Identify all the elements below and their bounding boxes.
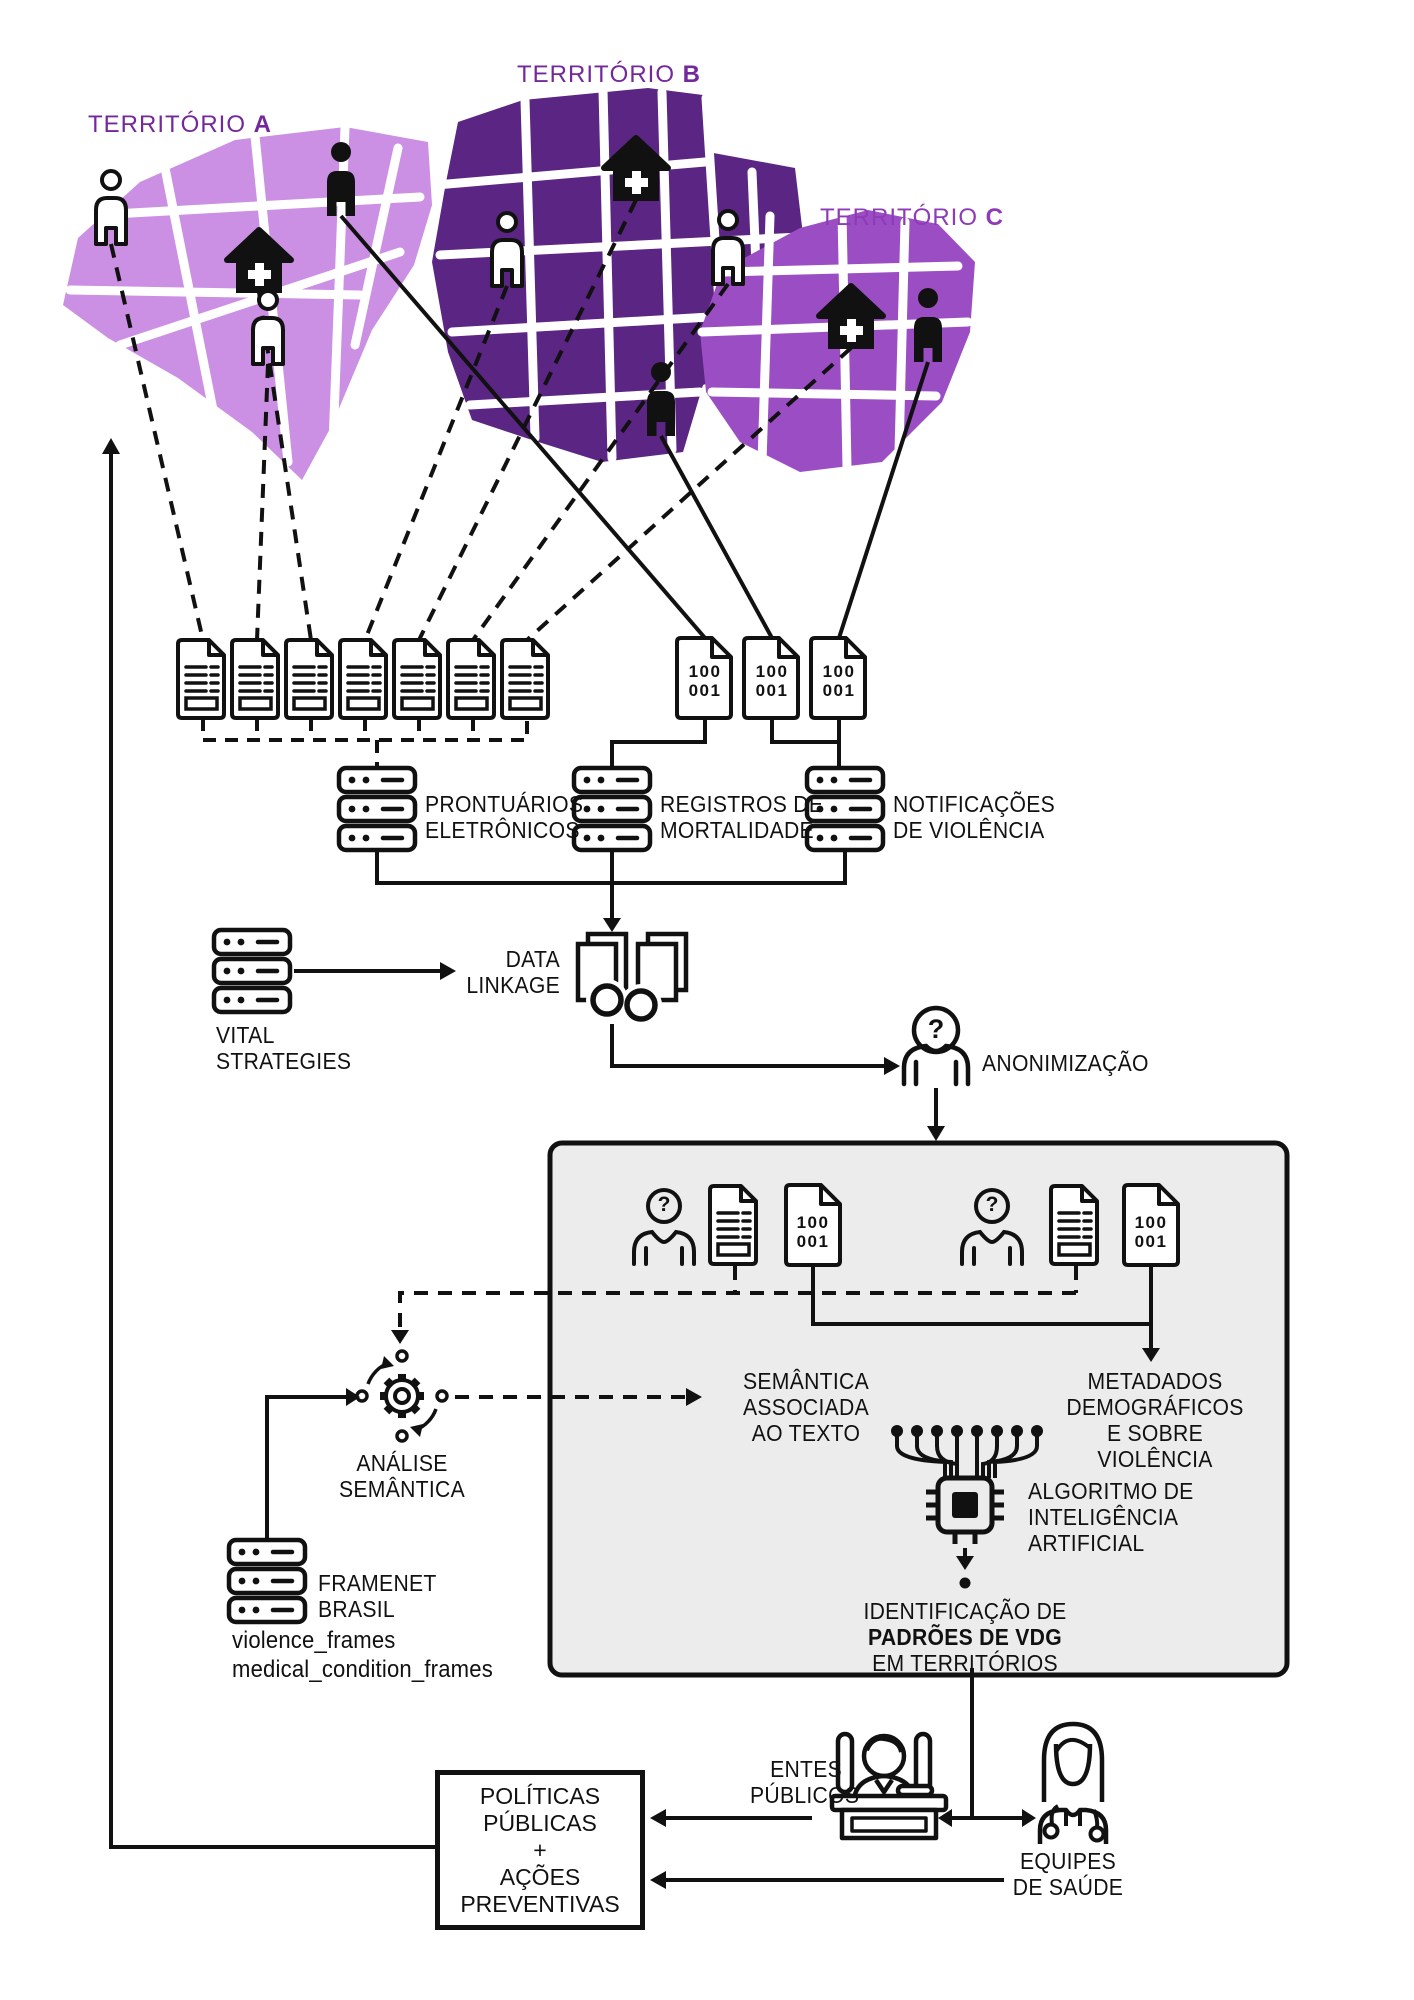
territory-letter: A <box>254 111 272 138</box>
question-mark-glyph: ? <box>972 1193 1012 1217</box>
territory-a-label: TERRITÓRIO A <box>88 112 272 138</box>
equipes-saude-label: EQUIPES DE SAÚDE <box>1013 1848 1123 1900</box>
linkage-to-anonymization-connector <box>612 1024 884 1066</box>
framenet-database-icon <box>229 1540 305 1622</box>
binary-digits: 100 001 <box>734 662 810 700</box>
semantic-analysis-gear-icon <box>357 1351 447 1441</box>
prontuarios-database-icon <box>339 768 415 850</box>
binary-digits: 100 001 <box>1113 1213 1189 1251</box>
territory-letter: B <box>683 61 701 88</box>
territory-label-text: TERRITÓRIO <box>88 111 246 138</box>
metadados-label: METADADOS DEMOGRÁFICOS E SOBRE VIOLÊNCIA <box>1054 1368 1256 1472</box>
politicas-publicas-box: POLÍTICAS PÚBLICAS + AÇÕES PREVENTIVAS <box>435 1770 645 1930</box>
territory-label-text: TERRITÓRIO <box>820 204 978 231</box>
infographic-canvas: TERRITÓRIO A TERRITÓRIO B TERRITÓRIO C 1… <box>0 0 1414 2000</box>
arrowhead-down <box>391 1330 409 1344</box>
text-document-icons <box>178 640 548 718</box>
identificacao-line2-bold: PADRÕES DE VDG <box>868 1624 1062 1650</box>
arrowhead-right <box>884 1057 900 1075</box>
binary-digits: 100 001 <box>775 1213 851 1251</box>
data-linkage-icon <box>578 934 686 1026</box>
databases-to-linkage-bus <box>377 852 845 920</box>
output-dot <box>960 1578 971 1589</box>
semantica-texto-label: SEMÂNTICA ASSOCIADA AO TEXTO <box>723 1368 889 1446</box>
framenet-label: FRAMENET BRASIL <box>318 1570 437 1622</box>
vital-strategies-label: VITAL STRATEGIES <box>216 1022 351 1074</box>
identificacao-line3: EM TERRITÓRIOS <box>872 1650 1058 1676</box>
territory-b-label: TERRITÓRIO B <box>517 62 701 88</box>
identificacao-line1: IDENTIFICAÇÃO DE <box>863 1598 1066 1624</box>
anonimizacao-label: ANONIMIZAÇÃO <box>982 1050 1149 1076</box>
territory-label-text: TERRITÓRIO <box>517 61 675 88</box>
health-team-doctor-icon <box>1040 1724 1106 1844</box>
question-mark-glyph: ? <box>644 1193 684 1217</box>
arrowhead-down <box>603 918 621 932</box>
identificacao-label: IDENTIFICAÇÃO DEPADRÕES DE VDGEM TERRITÓ… <box>855 1598 1076 1676</box>
arrowhead-left <box>650 1871 666 1889</box>
documents-to-databases-connectors <box>203 718 839 766</box>
data-linkage-label: DATA LINKAGE <box>440 946 560 998</box>
binary-digits: 100 001 <box>801 662 877 700</box>
arrowhead-left <box>650 1809 666 1827</box>
question-mark-glyph: ? <box>916 1014 956 1045</box>
notificacoes-label: NOTIFICAÇÕES DE VIOLÊNCIA <box>893 791 1055 843</box>
arrowhead-right <box>1022 1809 1036 1827</box>
algoritmo-label: ALGORITMO DE INTELIGÊNCIA ARTIFICIAL <box>1028 1478 1194 1556</box>
analise-semantica-label: ANÁLISE SEMÂNTICA <box>328 1450 475 1502</box>
arrowhead-down <box>927 1126 945 1141</box>
territory-letter: C <box>986 204 1004 231</box>
framenet-frames-list: violence_frames medical_condition_frames <box>232 1626 493 1684</box>
registros-label: REGISTROS DE MORTALIDADE <box>660 791 823 843</box>
registros-database-icon <box>574 768 650 850</box>
arrowhead-up <box>102 438 120 454</box>
prontuarios-label: PRONTUÁRIOS ELETRÔNICOS <box>425 791 583 843</box>
vital-strategies-database-icon <box>214 930 290 1012</box>
diagram-artwork <box>0 0 1414 2000</box>
entes-publicos-label: ENTES PÚBLICOS <box>750 1756 842 1808</box>
territory-c-label: TERRITÓRIO C <box>820 205 1004 231</box>
binary-digits: 100 001 <box>667 662 743 700</box>
